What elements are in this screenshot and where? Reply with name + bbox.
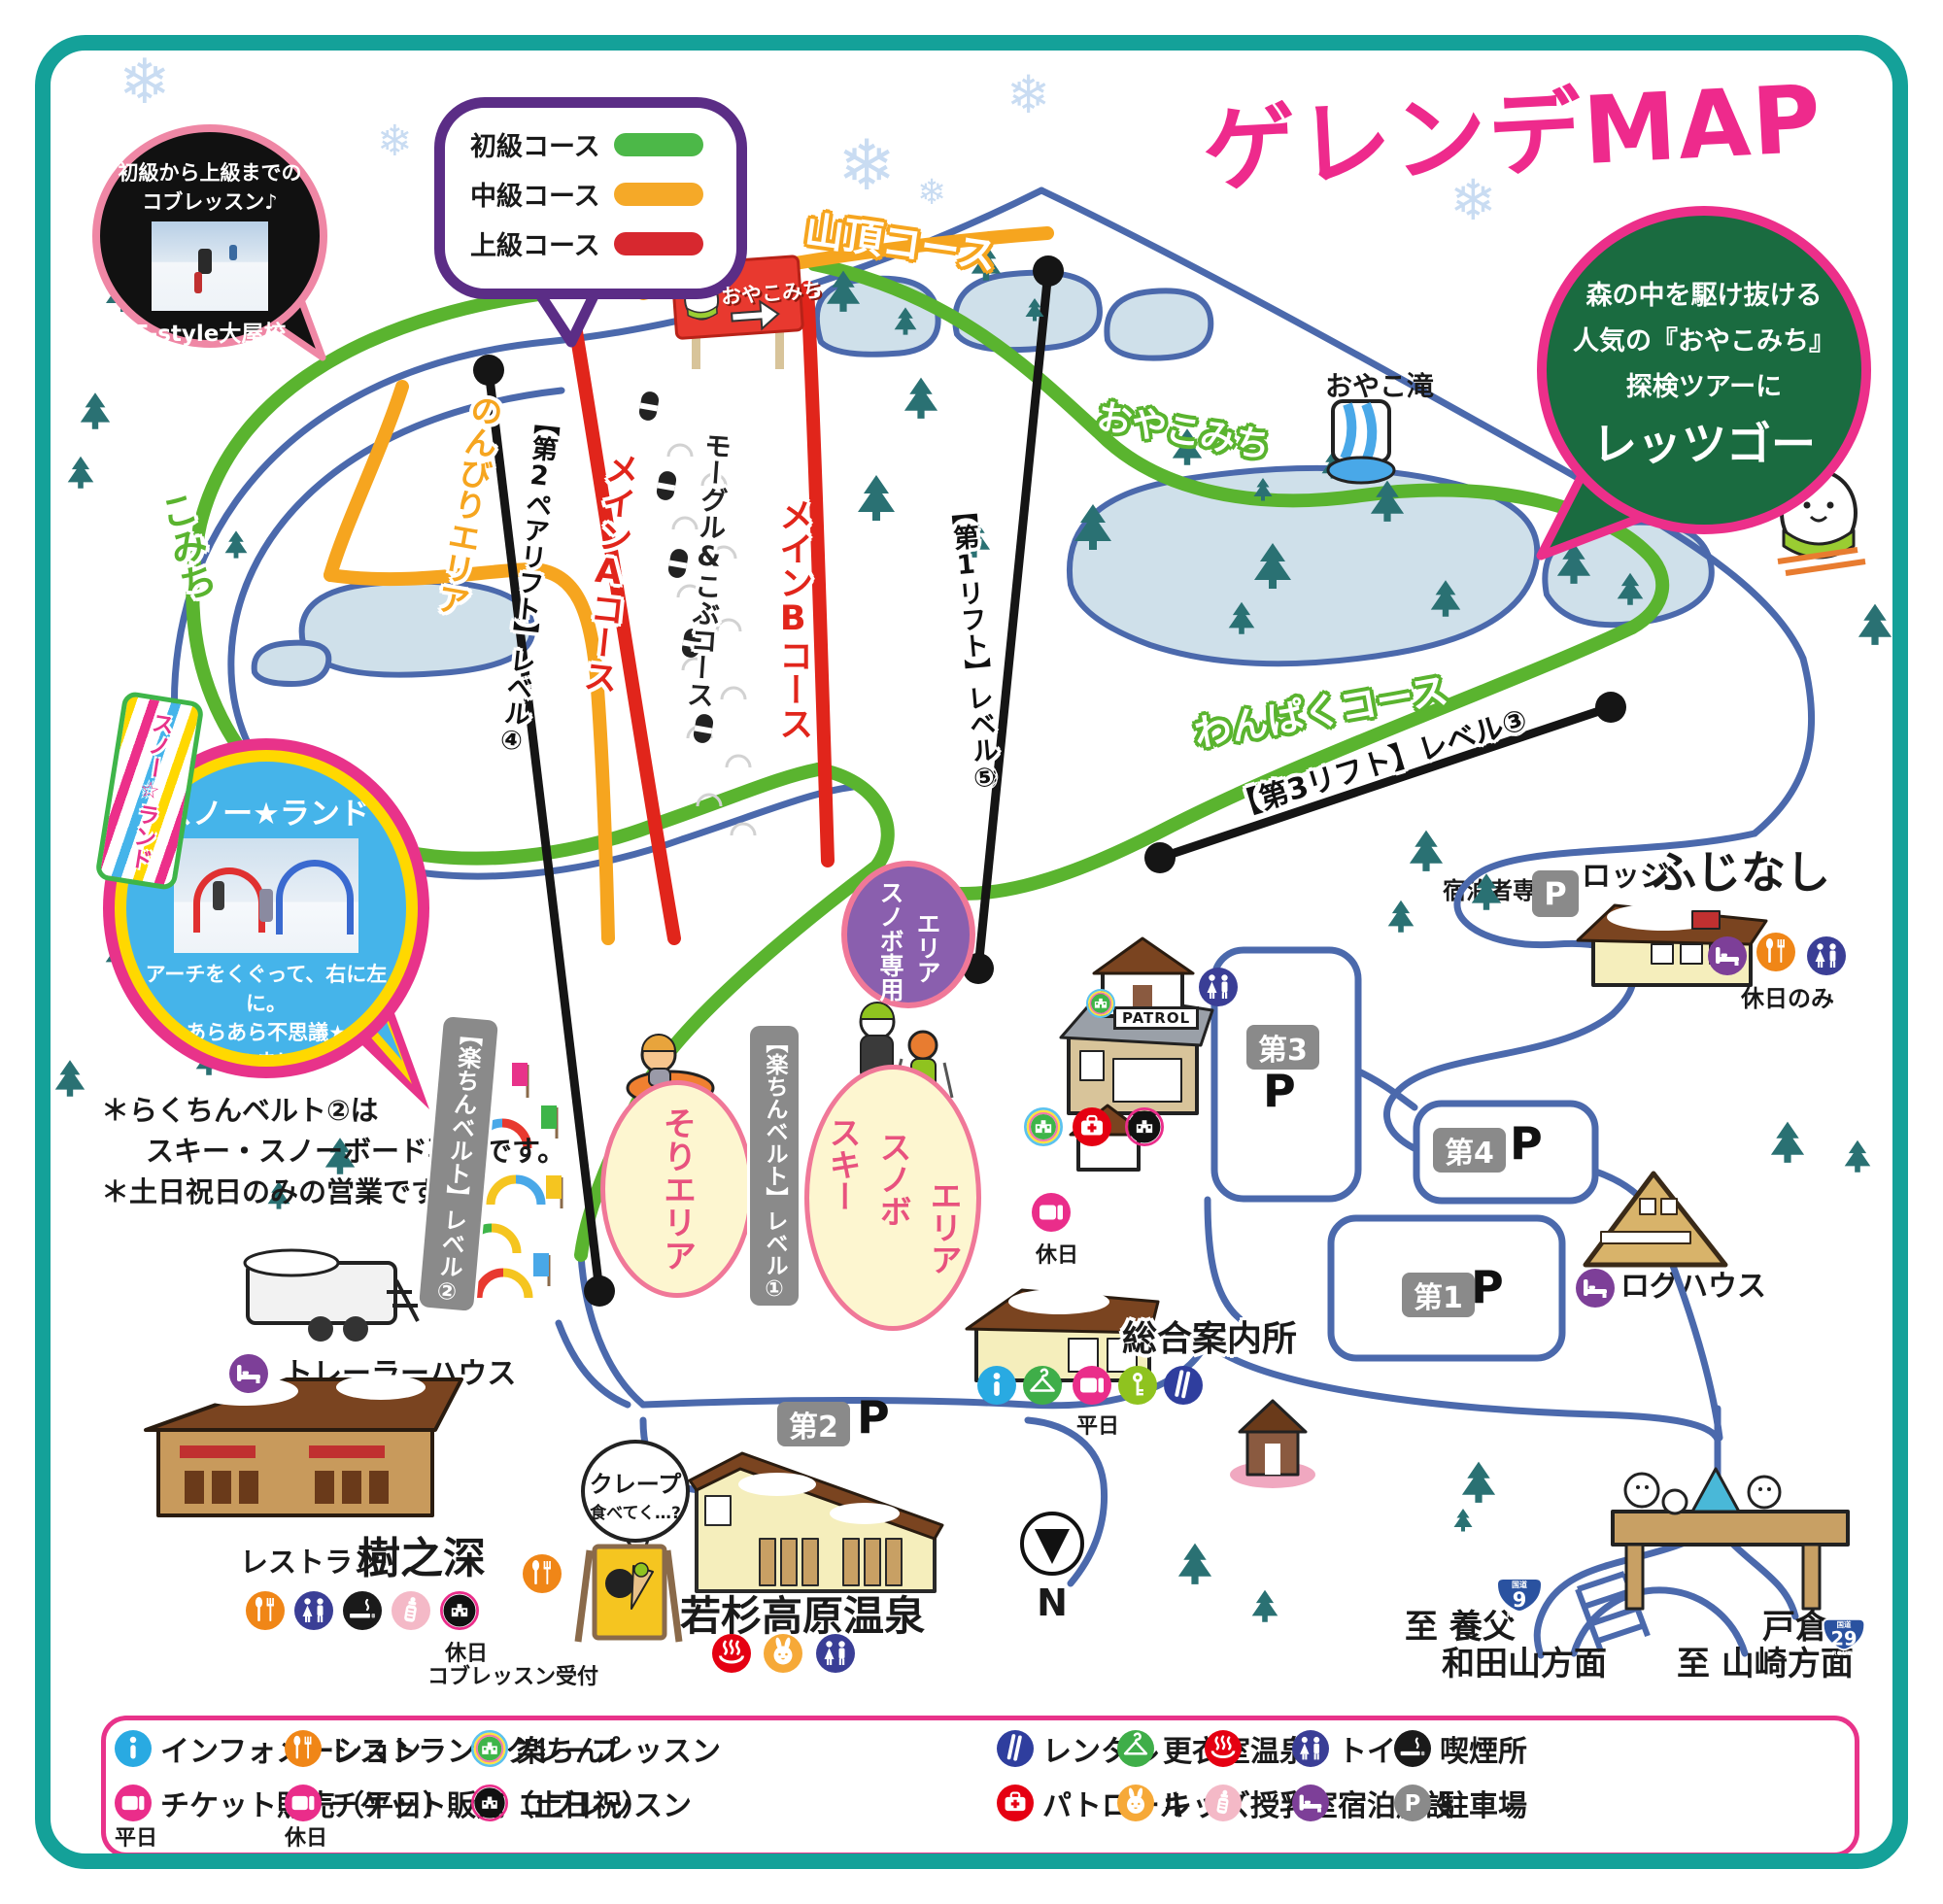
belt1-bar: 【楽ちんベルト】レベル①	[750, 1026, 799, 1306]
lodging-icon	[1708, 936, 1747, 975]
changing-room-icon	[1117, 1730, 1154, 1767]
waterfall-label: おやこ滝	[1325, 371, 1434, 402]
sled-area-label: そりエリア	[654, 1106, 701, 1272]
key-icon	[1118, 1366, 1157, 1405]
toilet-icon	[1807, 936, 1846, 975]
small-hut	[1230, 1401, 1315, 1488]
restaurant-building	[146, 1375, 461, 1515]
lodging-icon	[1292, 1785, 1329, 1821]
note-line1: ＊らくちんベルト②は	[101, 1088, 565, 1129]
note-line3: ＊土日祝日のみの営業です。	[101, 1170, 565, 1210]
restaurant-icon	[246, 1591, 285, 1630]
belt1-label: 【楽ちんベルト】レベル①	[758, 1031, 791, 1302]
route29-number: 29	[1830, 1628, 1857, 1650]
route29-word: ROUTE	[1832, 1649, 1857, 1657]
snowland-line1: アーチをくぐって、右に左に。	[126, 959, 406, 1017]
tour-bubble-line4: レッツゴー	[1547, 409, 1861, 473]
rental-icon	[997, 1730, 1034, 1767]
lesson-icon	[471, 1730, 508, 1767]
onsen-building	[690, 1453, 942, 1591]
toilet-icon	[294, 1591, 333, 1630]
course-legend-intermediate: 中級コース	[470, 175, 600, 213]
parking4-sign: 第4	[1433, 1128, 1506, 1173]
ski-area-line2: スノボ	[869, 1131, 916, 1227]
lodge-note: 休日のみ	[1741, 979, 1834, 1013]
ticket-weekday-icon	[1073, 1366, 1111, 1405]
ski-area-line1: スキー	[819, 1116, 866, 1212]
ski-snowboard-area: スキー スノボ エリア	[804, 1065, 981, 1331]
advanced-color-bar	[614, 232, 703, 255]
nursing-icon	[392, 1591, 430, 1630]
snowland-flag-label: スノー☆ランド	[120, 709, 178, 871]
snowboard-area-line2: エリア	[909, 911, 944, 984]
trailer-house	[245, 1250, 418, 1342]
tour-bubble-line3: 探検ツアーに	[1547, 365, 1861, 403]
crepe-bubble: クレープ 食べてく…?	[581, 1440, 690, 1543]
tour-bubble-line2: 人気の『おやこみち』	[1547, 320, 1861, 357]
legend-item-lesson: 楽ちんレッスン	[471, 1727, 721, 1770]
belt-notes: ＊らくちんベルト②は スキー・スノーボード専用です。 ＊土日祝日のみの営業です。	[101, 1088, 565, 1210]
snowland-photo	[174, 838, 358, 953]
ticket-icon	[285, 1785, 322, 1821]
lodge-name-label: ふじなし	[1652, 847, 1830, 899]
loghouse-building	[1585, 1173, 1725, 1265]
kob-lesson-icon	[440, 1591, 479, 1630]
parking4-letter: P	[1510, 1117, 1543, 1170]
parking3-sign: 第3	[1246, 1025, 1319, 1070]
ticket-holiday-icon	[1032, 1193, 1071, 1232]
legend-caption-weekday: 平日	[115, 1820, 157, 1852]
kob-lesson-icon	[471, 1785, 508, 1821]
snowboard-area-line1: スノボ専用	[872, 880, 907, 1002]
intermediate-color-bar	[614, 183, 703, 206]
north-compass: N	[1018, 1510, 1086, 1616]
smoking-icon	[1394, 1730, 1431, 1767]
lesson-bubble: 初級から上級までの コブレッスン♪ F-style大屋校	[92, 124, 327, 348]
smoking-icon	[343, 1591, 382, 1630]
legend-caption-holiday: 休日	[285, 1820, 327, 1852]
crepe-board	[578, 1547, 679, 1642]
kob-lesson-icon	[1125, 1107, 1164, 1146]
onsen-icon	[1205, 1730, 1242, 1767]
crepe-line1: クレープ	[585, 1465, 686, 1499]
legend-label: 楽ちんレッスン	[517, 1727, 721, 1770]
toilet-icon	[1292, 1730, 1329, 1767]
course-legend-beginner: 初級コース	[470, 125, 600, 163]
north-label: N	[1018, 1581, 1086, 1624]
legend-label: コブレッスン	[517, 1782, 692, 1824]
crepe-restaurant-icon	[523, 1554, 562, 1593]
legend-label: 駐車場	[1440, 1782, 1527, 1824]
direction-wadayama: 和田山方面	[1442, 1646, 1607, 1683]
gelande-map: ゲレンデMAP 初級から上級までの コブレッスン♪ F-style大屋校 初級コ…	[0, 0, 1943, 1904]
course-mainB-label: メインBコース	[773, 497, 812, 740]
legend-item-smoking: 喫煙所	[1394, 1727, 1527, 1770]
parking1-letter: P	[1471, 1261, 1504, 1313]
parking1-sign: 第1	[1402, 1273, 1475, 1317]
ticket-holiday-caption: 休日	[1036, 1238, 1078, 1269]
tour-bubble: 森の中を駆け抜ける 人気の『おやこみち』 探検ツアーに レッツゴー	[1537, 206, 1871, 534]
note-line2: スキー・スノーボード専用です。	[146, 1129, 565, 1170]
parking2-letter: P	[857, 1391, 890, 1444]
patrol-icon	[997, 1785, 1034, 1821]
rental-icon	[1164, 1366, 1203, 1405]
lesson-bubble-school: F-style大屋校	[100, 315, 320, 348]
lodging-icon	[229, 1354, 268, 1393]
lesson-bubble-line1: 初級から上級までの	[100, 157, 320, 187]
svg-text:P: P	[1405, 1791, 1421, 1817]
snowland-line2: あらあら不思議★	[126, 1017, 406, 1046]
kids-icon	[764, 1634, 802, 1673]
kids-icon	[1117, 1785, 1154, 1821]
ski-area-line3: エリア	[920, 1179, 967, 1275]
sled-area: そりエリア	[600, 1080, 754, 1298]
changing-room-icon	[1023, 1366, 1062, 1405]
toilet-icon	[816, 1634, 855, 1673]
parking3-letter: P	[1263, 1065, 1296, 1117]
parking2-sign: 第2	[777, 1402, 850, 1446]
north-arrow-icon	[1018, 1510, 1086, 1578]
waterfall-icon	[1328, 401, 1394, 483]
route29-badge: 国道 29 ROUTE	[1819, 1616, 1869, 1665]
restaurant-note2: コブレッスン受付	[427, 1659, 598, 1690]
route9-number: 9	[1513, 1588, 1527, 1612]
lesson-photo	[152, 221, 268, 311]
lodge-parking-icon: P	[1532, 870, 1579, 917]
lesson-icon	[1024, 1107, 1063, 1146]
lesson-icon	[1086, 989, 1115, 1018]
legend-item-kob: コブレッスン	[471, 1782, 692, 1824]
ticket-icon	[115, 1785, 152, 1821]
restaurant-icon	[1756, 933, 1795, 971]
patrol-icon	[1073, 1107, 1111, 1146]
lesson-bubble-line2: コブレッスン♪	[100, 187, 320, 216]
tour-bubble-line1: 森の中を駆け抜ける	[1547, 274, 1861, 312]
patrol-sign: PATROL	[1113, 1006, 1199, 1030]
info-icon	[115, 1730, 152, 1767]
onsen-icon	[712, 1634, 751, 1673]
legend-label: 喫煙所	[1440, 1727, 1527, 1770]
ticket-weekday-caption: 平日	[1076, 1409, 1119, 1440]
restaurant-icon	[285, 1730, 322, 1767]
nursing-icon	[1205, 1785, 1242, 1821]
info-icon	[977, 1366, 1016, 1405]
info-center-label: 総合案内所	[1122, 1319, 1297, 1359]
toilet-icon	[1199, 968, 1238, 1006]
course-legend-advanced: 上級コース	[470, 224, 600, 262]
route9-badge: 国道 9 ROUTE	[1492, 1576, 1547, 1628]
lodging-icon	[1576, 1269, 1615, 1308]
crepe-line2: 食べてく…?	[585, 1499, 686, 1523]
snowboard-only-area: スノボ専用 エリア	[841, 861, 975, 1008]
course-legend: 初級コース 中級コース 上級コース	[434, 97, 747, 299]
parking-icon: P	[1394, 1785, 1431, 1821]
route9-word: ROUTE	[1507, 1612, 1533, 1619]
beginner-color-bar	[614, 133, 703, 156]
legend-item-parking: P 駐車場	[1394, 1782, 1527, 1824]
